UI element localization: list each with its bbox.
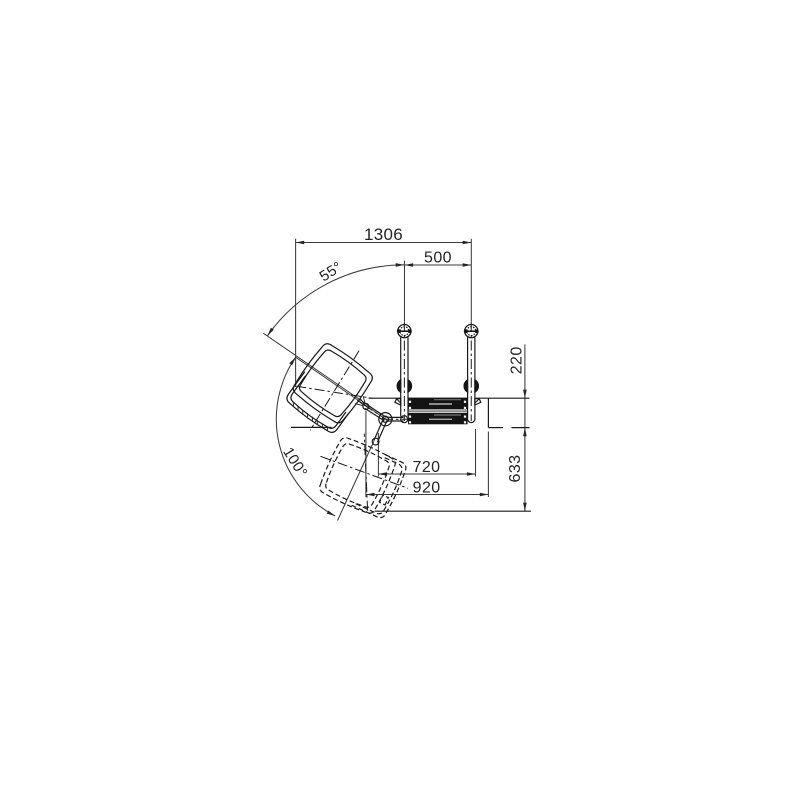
svg-text:720: 720 [413, 459, 441, 476]
svg-text:920: 920 [413, 479, 441, 496]
svg-text:220: 220 [509, 346, 526, 374]
svg-text:1306: 1306 [364, 225, 403, 244]
svg-text:500: 500 [424, 250, 452, 267]
svg-text:633: 633 [507, 455, 524, 483]
